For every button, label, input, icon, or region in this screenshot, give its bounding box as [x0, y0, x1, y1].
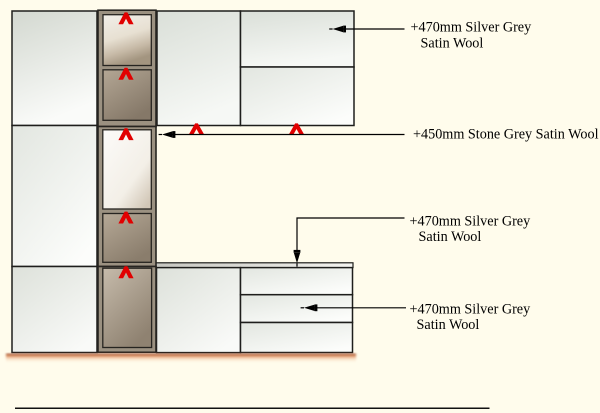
svg-text:+470mm Silver Grey: +470mm Silver Grey: [411, 20, 533, 36]
svg-text:Satin Wool: Satin Wool: [417, 317, 480, 333]
svg-text:Satin Wool: Satin Wool: [419, 229, 482, 245]
svg-text:Satin Wool: Satin Wool: [421, 35, 484, 51]
svg-text:+450mm Stone Grey Satin Wool: +450mm Stone Grey Satin Wool: [413, 126, 599, 142]
svg-text:+470mm Silver Grey: +470mm Silver Grey: [410, 301, 532, 317]
svg-text:+470mm Silver Grey: +470mm Silver Grey: [410, 214, 532, 230]
